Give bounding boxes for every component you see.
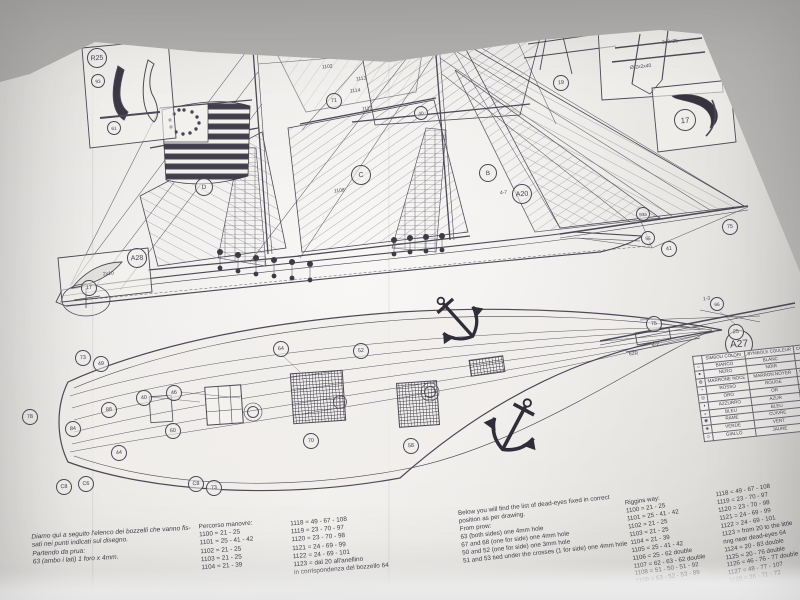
colour-symbol-table-wrap: SIMBOLI COLORISYMBOLE COULEURCOLOUR SYMB…	[692, 340, 800, 442]
deck-plan	[59, 281, 795, 491]
plan-sheet: R2593611917FBCDA20A27A281725756675415593…	[0, 0, 800, 600]
anchor-detail-box	[652, 80, 736, 152]
dimension-label: 1101	[296, 49, 307, 56]
percorso-manovre-list: Percorso manovre: 1100 = 21 - 251101 = 2…	[198, 517, 296, 573]
percorso-lines: 1100 = 21 - 251101 = 25 - 41 - 421102 = …	[199, 525, 297, 572]
circled-part-label: F	[269, 30, 286, 47]
davit-detail-box	[82, 40, 176, 148]
photo-backdrop: R2593611917FBCDA20A27A281725756675415593…	[0, 0, 800, 600]
